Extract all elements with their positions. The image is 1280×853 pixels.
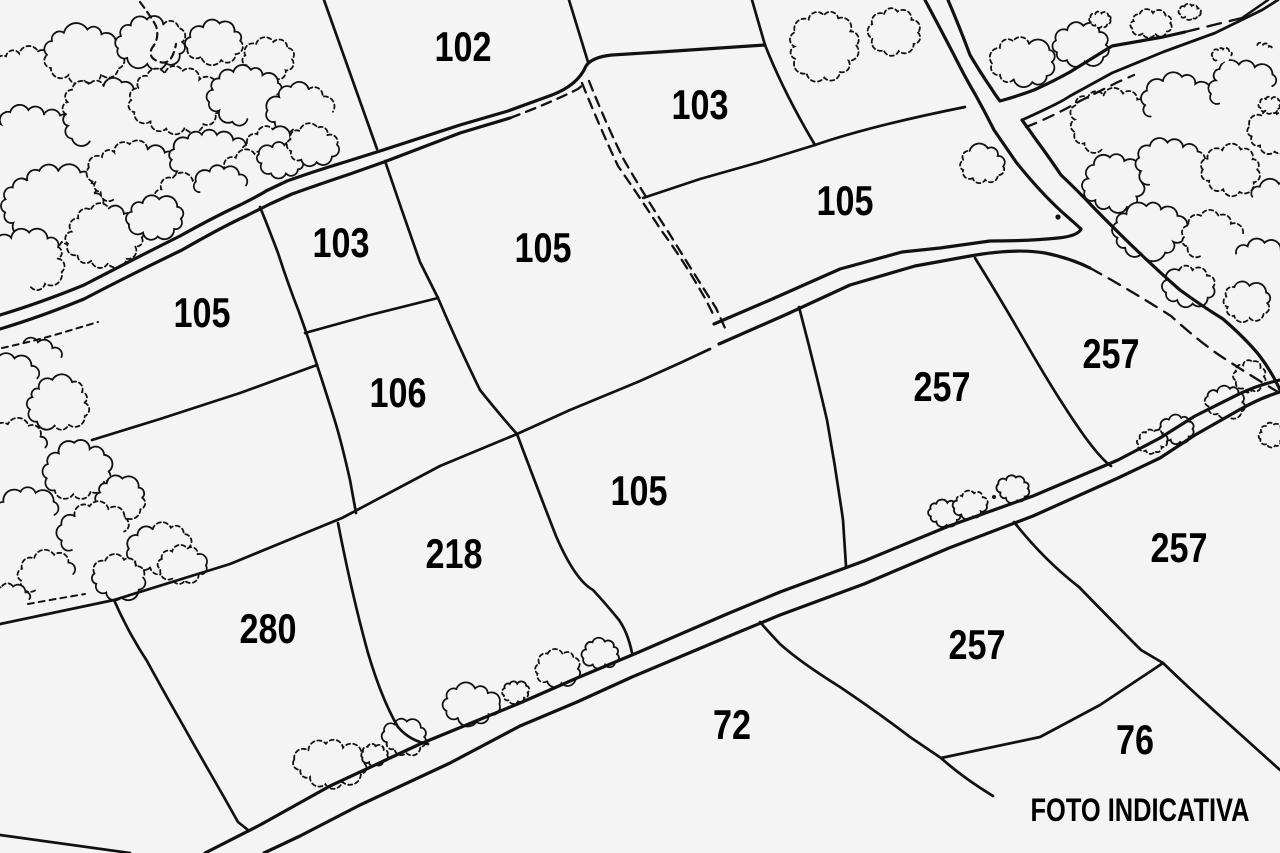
svg-text:257: 257 xyxy=(949,621,1006,668)
svg-text:257: 257 xyxy=(914,363,971,410)
svg-text:257: 257 xyxy=(1151,524,1208,571)
svg-text:105: 105 xyxy=(515,224,572,271)
svg-text:257: 257 xyxy=(1083,330,1140,377)
svg-text:105: 105 xyxy=(611,467,668,514)
svg-text:218: 218 xyxy=(426,530,483,577)
svg-text:76: 76 xyxy=(1116,716,1154,763)
svg-text:280: 280 xyxy=(240,605,297,652)
svg-text:103: 103 xyxy=(672,81,729,128)
svg-text:105: 105 xyxy=(817,177,874,224)
svg-text:102: 102 xyxy=(435,23,492,70)
svg-text:72: 72 xyxy=(713,701,751,748)
svg-text:103: 103 xyxy=(313,219,370,266)
svg-text:106: 106 xyxy=(370,369,427,416)
svg-text:105: 105 xyxy=(174,289,231,336)
svg-text:FOTO INDICATIVA: FOTO INDICATIVA xyxy=(1031,792,1250,828)
